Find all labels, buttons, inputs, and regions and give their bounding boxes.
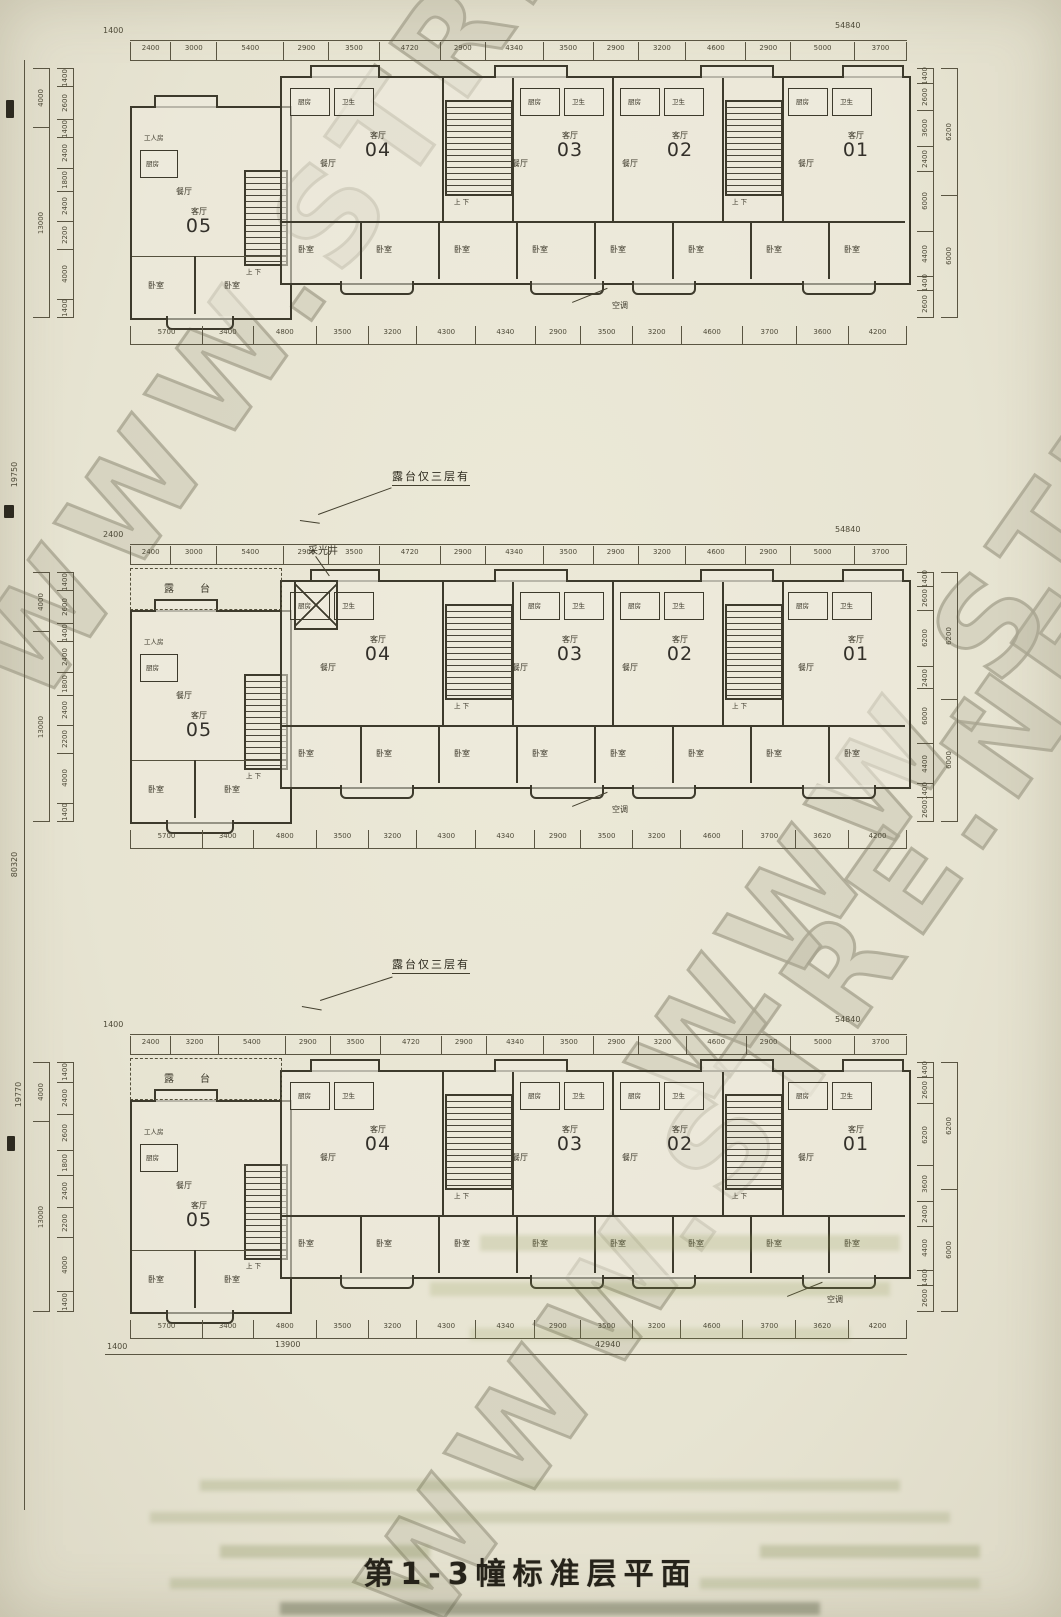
dimension-segment: 3200 bbox=[632, 830, 681, 848]
unit-number-04: 客厅04 bbox=[352, 1124, 404, 1153]
dimension-segment: 4400 bbox=[917, 1226, 933, 1270]
unit-number: 05 bbox=[174, 1211, 224, 1229]
dimension-segment: 4720 bbox=[379, 42, 440, 60]
dimension-segment: 4800 bbox=[253, 326, 317, 344]
unit-number-04: 客厅04 bbox=[352, 634, 404, 663]
dimension-value: 4000 bbox=[61, 265, 69, 283]
dimension-column: 140026001400240018002400220040001400 bbox=[57, 68, 74, 318]
bedroom-divider bbox=[750, 1215, 752, 1273]
dimension-segment: 2200 bbox=[57, 1207, 73, 1237]
dimension-segment: 1400 bbox=[57, 803, 73, 822]
dimension-segment: 2900 bbox=[440, 42, 485, 60]
unit-number-03: 客厅03 bbox=[544, 130, 596, 159]
worker-room-label: 工人房 bbox=[144, 132, 164, 142]
overall-dimension-value: 80320 bbox=[10, 852, 19, 877]
dimension-segment: 4300 bbox=[416, 830, 475, 848]
bath-label: 卫生 bbox=[342, 600, 355, 610]
main-units-block: 上 下上 下卧室卧室卧室卧室卧室卧室卧室卧室客厅04餐厅客厅03餐厅客厅02餐厅… bbox=[280, 580, 911, 789]
party-wall bbox=[612, 582, 614, 725]
overall-dimension-line bbox=[24, 60, 25, 1510]
bedroom-label: 卧室 bbox=[376, 748, 392, 759]
dimension-column: 400013000 bbox=[33, 1062, 50, 1312]
dimension-value: 4800 bbox=[276, 832, 294, 840]
dimension-value: 3700 bbox=[760, 1322, 778, 1330]
dimension-segment: 2900 bbox=[745, 546, 790, 564]
dining-label: 餐厅 bbox=[512, 662, 528, 673]
top-total-value: 54840 bbox=[835, 1015, 860, 1024]
dimension-segment: 5700 bbox=[130, 830, 202, 848]
main-units-block: 上 下上 下卧室卧室卧室卧室卧室卧室卧室卧室客厅04餐厅客厅03餐厅客厅02餐厅… bbox=[280, 76, 911, 285]
dimension-segment: 3600 bbox=[917, 110, 933, 147]
party-wall bbox=[722, 582, 724, 725]
balcony bbox=[530, 1275, 604, 1289]
dimension-segment: 3200 bbox=[368, 326, 417, 344]
terrace-note-annotation: 露台仅三层有 bbox=[392, 468, 470, 486]
dimension-value: 4340 bbox=[496, 832, 514, 840]
dimension-value: 2900 bbox=[454, 548, 472, 556]
stair-direction-label: 上 下 bbox=[246, 770, 261, 780]
dining-label: 餐厅 bbox=[176, 186, 192, 197]
ac-unit-label: 空调 bbox=[827, 1294, 843, 1305]
stair-direction-label: 上 下 bbox=[246, 266, 261, 276]
bedroom-divider bbox=[594, 1215, 596, 1273]
balcony bbox=[632, 1275, 696, 1289]
dimension-value: 2400 bbox=[921, 1205, 929, 1223]
bath-label: 卫生 bbox=[672, 96, 685, 106]
dimension-segment: 3200 bbox=[368, 1320, 417, 1338]
bay-window bbox=[310, 65, 380, 78]
dimension-value: 1400 bbox=[61, 1063, 69, 1081]
dimension-segment: 6000 bbox=[941, 195, 957, 318]
dimension-segment: 3620 bbox=[795, 830, 848, 848]
annotation-leader-line bbox=[302, 1006, 322, 1011]
kitchen-label: 厨房 bbox=[628, 96, 641, 106]
top-left-offset-value: 1400 bbox=[103, 26, 123, 35]
dimension-segment: 2600 bbox=[917, 1077, 933, 1103]
dimension-value: 2400 bbox=[921, 669, 929, 687]
dimension-segment: 1800 bbox=[57, 168, 73, 191]
dimension-segment: 6200 bbox=[917, 1103, 933, 1165]
bedroom-label: 卧室 bbox=[844, 1238, 860, 1249]
dimension-value: 3400 bbox=[219, 832, 237, 840]
bedroom-label: 卧室 bbox=[532, 1238, 548, 1249]
dimension-value: 6200 bbox=[945, 123, 953, 141]
dimension-value: 3500 bbox=[345, 44, 363, 52]
dimension-value: 2900 bbox=[759, 548, 777, 556]
dimension-row: 2400300054002900350047202900434035002900… bbox=[130, 546, 907, 565]
bedroom-divider bbox=[750, 725, 752, 783]
dimension-segment: 4200 bbox=[848, 830, 907, 848]
bedroom-label: 卧室 bbox=[148, 784, 164, 795]
drawing-title: 第1-3幢标准层平面 bbox=[0, 1549, 1061, 1593]
dimension-segment: 1400 bbox=[917, 276, 933, 291]
scan-edge-mark bbox=[6, 100, 14, 118]
dimension-value: 2200 bbox=[61, 1214, 69, 1232]
dimension-segment: 5700 bbox=[130, 1320, 202, 1338]
dining-label: 餐厅 bbox=[512, 158, 528, 169]
dimension-value: 3200 bbox=[654, 1038, 672, 1046]
dimension-segment: 2400 bbox=[130, 42, 170, 60]
dimension-value: 1400 bbox=[61, 804, 69, 822]
overall-width-line bbox=[130, 30, 907, 41]
dimension-segment: 1400 bbox=[57, 623, 73, 641]
dimension-value: 2600 bbox=[921, 800, 929, 818]
dimension-value: 6000 bbox=[921, 192, 929, 210]
dimension-segment: 4600 bbox=[686, 1036, 746, 1054]
dimension-segment: 6200 bbox=[941, 68, 957, 195]
dimension-segment: 3200 bbox=[368, 830, 417, 848]
dimension-segment: 2900 bbox=[283, 42, 328, 60]
dimension-segment: 5400 bbox=[216, 42, 283, 60]
dimension-value: 4300 bbox=[437, 1322, 455, 1330]
kitchen-label: 厨房 bbox=[796, 1090, 809, 1100]
dimension-segment: 5700 bbox=[130, 326, 202, 344]
dimension-value: 3700 bbox=[760, 832, 778, 840]
bedroom-label: 卧室 bbox=[532, 748, 548, 759]
bedroom-label: 卧室 bbox=[688, 1238, 704, 1249]
bedroom-label: 卧室 bbox=[148, 280, 164, 291]
dimension-value: 4000 bbox=[37, 1083, 45, 1101]
dimension-segment: 4340 bbox=[475, 830, 534, 848]
dimension-segment: 4800 bbox=[253, 1320, 317, 1338]
dimension-segment: 3200 bbox=[632, 326, 681, 344]
staircase bbox=[725, 100, 783, 196]
dimension-segment: 4340 bbox=[485, 42, 543, 60]
scanned-drawing-page: WWW.STRE.NET WWW.STRE.NET WWW.STRE.NET 1… bbox=[0, 0, 1061, 1617]
dimension-segment: 3000 bbox=[170, 546, 216, 564]
unit-number: 04 bbox=[352, 141, 404, 159]
dimension-segment: 3600 bbox=[917, 1165, 933, 1201]
floor-plan-building-3: 1400548402400320054002900350047202900434… bbox=[95, 1022, 940, 1367]
unit-number-03: 客厅03 bbox=[544, 634, 596, 663]
dimension-value: 5000 bbox=[814, 548, 832, 556]
dimension-value: 3620 bbox=[813, 1322, 831, 1330]
dimension-segment: 1400 bbox=[917, 68, 933, 83]
dimension-segment: 3200 bbox=[638, 546, 686, 564]
stair-direction-label: 上 下 bbox=[732, 196, 747, 206]
dimension-segment: 1400 bbox=[917, 783, 933, 797]
interior-wall bbox=[132, 1250, 286, 1251]
bay-window bbox=[494, 65, 568, 78]
dimension-row: 2400320054002900350047202900434035002900… bbox=[130, 1036, 907, 1055]
bath-label: 卫生 bbox=[342, 1090, 355, 1100]
dimension-segment: 13000 bbox=[33, 631, 49, 822]
bay-window bbox=[700, 1059, 774, 1072]
dimension-segment: 4600 bbox=[685, 546, 745, 564]
dimension-segment: 4800 bbox=[253, 830, 317, 848]
kitchen-label: 厨房 bbox=[146, 158, 159, 168]
kitchen-label: 厨房 bbox=[528, 1090, 541, 1100]
dimension-segment: 13000 bbox=[33, 1121, 49, 1312]
dimension-value: 13000 bbox=[37, 211, 45, 233]
dimension-value: 2900 bbox=[549, 832, 567, 840]
bedroom-divider bbox=[516, 725, 518, 783]
unit-number: 03 bbox=[544, 141, 596, 159]
interior-wall bbox=[132, 256, 286, 257]
annotation-leader-line bbox=[300, 520, 320, 524]
balcony bbox=[340, 281, 414, 295]
bleed-through-text bbox=[200, 1480, 900, 1491]
unit-number-03: 客厅03 bbox=[544, 1124, 596, 1153]
dimension-value: 3600 bbox=[921, 1175, 929, 1193]
dimension-column: 14002600620024006000440014002600 bbox=[917, 572, 934, 822]
staircase bbox=[445, 100, 513, 196]
dimension-segment: 2200 bbox=[57, 221, 73, 249]
dimension-segment: 2400 bbox=[130, 546, 170, 564]
bedroom-label: 卧室 bbox=[298, 244, 314, 255]
dimension-value: 2400 bbox=[921, 150, 929, 168]
terrace-label: 露台 bbox=[164, 1070, 236, 1085]
dimension-value: 3200 bbox=[384, 328, 402, 336]
dimension-row: 5700340048003500320043004340290035003200… bbox=[130, 1320, 907, 1339]
dimension-segment: 2900 bbox=[535, 326, 581, 344]
unit-05-block: 上 下工人房厨房餐厅客厅05卧室卧室 bbox=[130, 1100, 292, 1314]
dimension-segment: 2400 bbox=[57, 191, 73, 221]
unit-05-block: 上 下工人房厨房餐厅客厅05卧室卧室 bbox=[130, 106, 292, 320]
dimension-column: 62006000 bbox=[941, 572, 958, 822]
balcony bbox=[802, 785, 876, 799]
dimension-segment: 3500 bbox=[330, 1036, 380, 1054]
bedroom-divider bbox=[516, 221, 518, 279]
dimension-segment: 3200 bbox=[632, 1320, 681, 1338]
dimension-value: 2600 bbox=[921, 1082, 929, 1100]
dimension-segment: 4300 bbox=[416, 326, 475, 344]
dimension-segment: 3700 bbox=[854, 1036, 907, 1054]
unit-number: 02 bbox=[654, 645, 706, 663]
unit-number: 03 bbox=[544, 645, 596, 663]
dimension-segment: 4000 bbox=[57, 1237, 73, 1291]
dimension-segment: 3400 bbox=[202, 830, 253, 848]
dimension-segment: 1400 bbox=[57, 299, 73, 318]
dimension-segment: 6000 bbox=[917, 688, 933, 743]
bedroom-label: 卧室 bbox=[844, 748, 860, 759]
dimension-value: 13000 bbox=[37, 1205, 45, 1227]
dimension-value: 2400 bbox=[142, 1038, 160, 1046]
dimension-segment: 6000 bbox=[941, 699, 957, 822]
party-wall bbox=[442, 1072, 444, 1215]
dimension-segment: 4600 bbox=[685, 42, 745, 60]
terrace-note-annotation: 露台仅三层有 bbox=[392, 956, 470, 974]
dimension-value: 4400 bbox=[921, 245, 929, 263]
dimension-value: 2200 bbox=[61, 227, 69, 245]
dimension-segment: 1400 bbox=[57, 572, 73, 590]
balcony bbox=[632, 281, 696, 295]
dimension-value: 3500 bbox=[598, 328, 616, 336]
floor-plan-building-2: 2400548402400300054002900350047202900434… bbox=[95, 532, 940, 877]
dimension-value: 4340 bbox=[505, 548, 523, 556]
unit-number: 03 bbox=[544, 1135, 596, 1153]
balcony bbox=[340, 1275, 414, 1289]
dimension-value: 3500 bbox=[333, 328, 351, 336]
dimension-segment: 4720 bbox=[380, 1036, 441, 1054]
dining-label: 餐厅 bbox=[798, 662, 814, 673]
dimension-segment: 3700 bbox=[854, 546, 907, 564]
bedroom-label: 卧室 bbox=[454, 244, 470, 255]
dimension-value: 3500 bbox=[333, 832, 351, 840]
dimension-segment: 1800 bbox=[57, 1150, 73, 1175]
dimension-value: 3200 bbox=[653, 44, 671, 52]
dimension-value: 4340 bbox=[496, 328, 514, 336]
bedroom-label: 卧室 bbox=[844, 244, 860, 255]
dimension-column: 400013000 bbox=[33, 68, 50, 318]
dimension-segment: 3400 bbox=[202, 326, 253, 344]
bedroom-label: 卧室 bbox=[224, 784, 240, 795]
staircase bbox=[725, 1094, 783, 1190]
party-wall bbox=[442, 582, 444, 725]
dimension-value: 3000 bbox=[185, 548, 203, 556]
bedroom-label: 卧室 bbox=[688, 748, 704, 759]
bedroom-label: 卧室 bbox=[298, 1238, 314, 1249]
bay-window bbox=[494, 569, 568, 582]
dimension-value: 4600 bbox=[707, 548, 725, 556]
overall-dimension-value: 19770 bbox=[14, 1082, 23, 1107]
bay-window bbox=[700, 569, 774, 582]
worker-room-label: 工人房 bbox=[144, 1126, 164, 1136]
building-outline: 上 下工人房厨房餐厅客厅05卧室卧室上 下上 下卧室卧室卧室卧室卧室卧室卧室卧室… bbox=[130, 1062, 907, 1312]
dimension-value: 6000 bbox=[945, 247, 953, 265]
bedroom-divider bbox=[828, 221, 830, 279]
dimension-value: 2900 bbox=[607, 1038, 625, 1046]
dimension-value: 3200 bbox=[186, 1038, 204, 1046]
dimension-row: 5700340048003500320043004340290035003200… bbox=[130, 326, 907, 345]
kitchen-label: 厨房 bbox=[628, 1090, 641, 1100]
overall-width-line bbox=[130, 534, 907, 545]
scan-edge-mark bbox=[4, 505, 14, 518]
dimension-value: 2600 bbox=[921, 88, 929, 106]
bedroom-label: 卧室 bbox=[766, 1238, 782, 1249]
dining-label: 餐厅 bbox=[622, 1152, 638, 1163]
bottom-group-value: 13900 bbox=[275, 1340, 300, 1349]
dimension-segment: 2400 bbox=[57, 137, 73, 167]
light-well-label: 采光井 bbox=[308, 542, 338, 557]
dining-label: 餐厅 bbox=[512, 1152, 528, 1163]
ac-unit-label: 空调 bbox=[612, 300, 628, 311]
dimension-value: 5700 bbox=[158, 832, 176, 840]
dimension-value: 3500 bbox=[333, 1322, 351, 1330]
dimension-value: 3500 bbox=[560, 1038, 578, 1046]
dimension-segment: 3600 bbox=[796, 326, 848, 344]
bleed-through-text bbox=[150, 1512, 950, 1523]
dimension-value: 2400 bbox=[61, 144, 69, 162]
dimension-value: 1800 bbox=[61, 1154, 69, 1172]
stair-direction-label: 上 下 bbox=[454, 196, 469, 206]
dimension-value: 6200 bbox=[945, 627, 953, 645]
dimension-value: 4600 bbox=[707, 1038, 725, 1046]
dimension-value: 2600 bbox=[921, 1289, 929, 1307]
dimension-segment: 3500 bbox=[580, 830, 631, 848]
balcony bbox=[340, 785, 414, 799]
dimension-value: 1400 bbox=[61, 120, 69, 138]
dimension-segment: 2600 bbox=[917, 83, 933, 110]
kitchen-label: 厨房 bbox=[298, 1090, 311, 1100]
party-wall bbox=[612, 78, 614, 221]
unit-05-block: 上 下工人房厨房餐厅客厅05卧室卧室 bbox=[130, 610, 292, 824]
bedroom-label: 卧室 bbox=[766, 244, 782, 255]
dimension-value: 4800 bbox=[276, 1322, 294, 1330]
dimension-segment: 2200 bbox=[57, 725, 73, 753]
dimension-segment: 3000 bbox=[170, 42, 216, 60]
dimension-segment: 2400 bbox=[917, 146, 933, 171]
dimension-segment: 4200 bbox=[848, 1320, 907, 1338]
dimension-segment: 2400 bbox=[917, 666, 933, 688]
dimension-value: 3600 bbox=[921, 119, 929, 137]
dimension-segment: 1400 bbox=[57, 119, 73, 137]
dimension-segment: 2400 bbox=[57, 695, 73, 725]
building-outline: 上 下工人房厨房餐厅客厅05卧室卧室上 下上 下卧室卧室卧室卧室卧室卧室卧室卧室… bbox=[130, 68, 907, 318]
dimension-value: 3400 bbox=[219, 1322, 237, 1330]
bay-window bbox=[842, 65, 904, 78]
dining-label: 餐厅 bbox=[320, 662, 336, 673]
dimension-segment: 3620 bbox=[795, 1320, 848, 1338]
dimension-value: 1400 bbox=[61, 573, 69, 591]
dimension-value: 1400 bbox=[61, 624, 69, 642]
dimension-segment: 3500 bbox=[580, 326, 631, 344]
bedroom-divider bbox=[828, 725, 830, 783]
dimension-segment: 3700 bbox=[854, 42, 907, 60]
bedroom-label: 卧室 bbox=[376, 244, 392, 255]
dimension-value: 4600 bbox=[703, 328, 721, 336]
bedroom-divider bbox=[750, 221, 752, 279]
dimension-value: 3200 bbox=[383, 832, 401, 840]
dimension-value: 4400 bbox=[921, 755, 929, 773]
dimension-segment: 5400 bbox=[218, 1036, 285, 1054]
dimension-segment: 3500 bbox=[316, 326, 367, 344]
bedroom-divider bbox=[360, 221, 362, 279]
dimension-segment: 2900 bbox=[745, 42, 790, 60]
dimension-segment: 2900 bbox=[285, 1036, 330, 1054]
dimension-row: 5700340048003500320043004340290035003200… bbox=[130, 830, 907, 849]
dimension-value: 6200 bbox=[945, 1117, 953, 1135]
dimension-value: 4300 bbox=[437, 832, 455, 840]
dining-label: 餐厅 bbox=[176, 1180, 192, 1191]
dimension-row: 2400300054002900350047202900434035002900… bbox=[130, 42, 907, 61]
ac-unit-label: 空调 bbox=[612, 804, 628, 815]
dimension-segment: 3500 bbox=[543, 546, 593, 564]
bedroom-label: 卧室 bbox=[224, 1274, 240, 1285]
dimension-segment: 1400 bbox=[57, 1062, 73, 1082]
dimension-column: 140026001400240018002400220040001400 bbox=[57, 572, 74, 822]
bay-window bbox=[154, 95, 218, 108]
dimension-segment: 2900 bbox=[746, 1036, 791, 1054]
dimension-value: 3500 bbox=[559, 44, 577, 52]
bedroom-divider bbox=[438, 1215, 440, 1273]
dimension-segment: 4340 bbox=[485, 546, 543, 564]
bedroom-divider bbox=[438, 725, 440, 783]
dimension-value: 4600 bbox=[707, 44, 725, 52]
balcony bbox=[802, 281, 876, 295]
dimension-value: 5400 bbox=[243, 1038, 261, 1046]
dimension-value: 4600 bbox=[703, 1322, 721, 1330]
dimension-segment: 2400 bbox=[57, 1175, 73, 1208]
dimension-segment: 4300 bbox=[416, 1320, 475, 1338]
bath-label: 卫生 bbox=[840, 1090, 853, 1100]
interior-wall bbox=[194, 760, 196, 818]
bath-label: 卫生 bbox=[672, 1090, 685, 1100]
dimension-segment: 6000 bbox=[917, 171, 933, 231]
dimension-value: 2400 bbox=[142, 44, 160, 52]
dining-label: 餐厅 bbox=[622, 662, 638, 673]
bedroom-label: 卧室 bbox=[610, 1238, 626, 1249]
dimension-value: 3200 bbox=[383, 1322, 401, 1330]
bleed-through-text bbox=[280, 1602, 820, 1615]
bottom-group-value: 42940 bbox=[595, 1340, 620, 1349]
dimension-value: 5400 bbox=[241, 44, 259, 52]
dining-label: 餐厅 bbox=[798, 1152, 814, 1163]
unit-number: 04 bbox=[352, 645, 404, 663]
unit-number: 05 bbox=[174, 217, 224, 235]
terrace-label: 露台 bbox=[164, 580, 236, 595]
dimension-segment: 6000 bbox=[941, 1189, 957, 1312]
